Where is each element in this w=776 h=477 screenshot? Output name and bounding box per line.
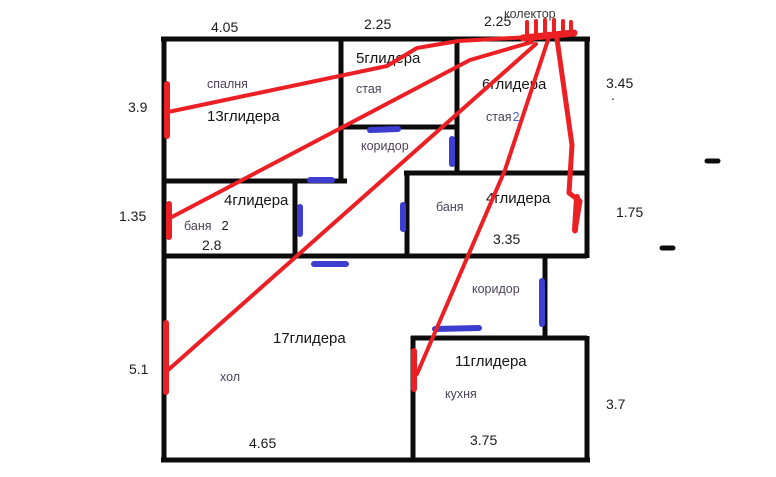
blue-radiator-marks (300, 129, 542, 329)
pipes (167, 37, 580, 374)
right-dashes (662, 161, 718, 248)
floor-plan-drawing (0, 0, 776, 477)
pipe-to-hol (167, 44, 536, 371)
collector-manifold (523, 20, 574, 38)
floor-plan-page: колектор 4.05 2.25 2.25 3.9 1.35 5.1 3.4… (0, 0, 776, 477)
blue-mark-kuhnya-wall (435, 328, 479, 329)
blue-mark-staya-wall (370, 129, 398, 130)
collector-bar (523, 33, 574, 38)
pipe-to-banya2 (170, 42, 532, 218)
pipe-to-spalnya (168, 37, 530, 112)
radiator-banya (575, 197, 577, 230)
